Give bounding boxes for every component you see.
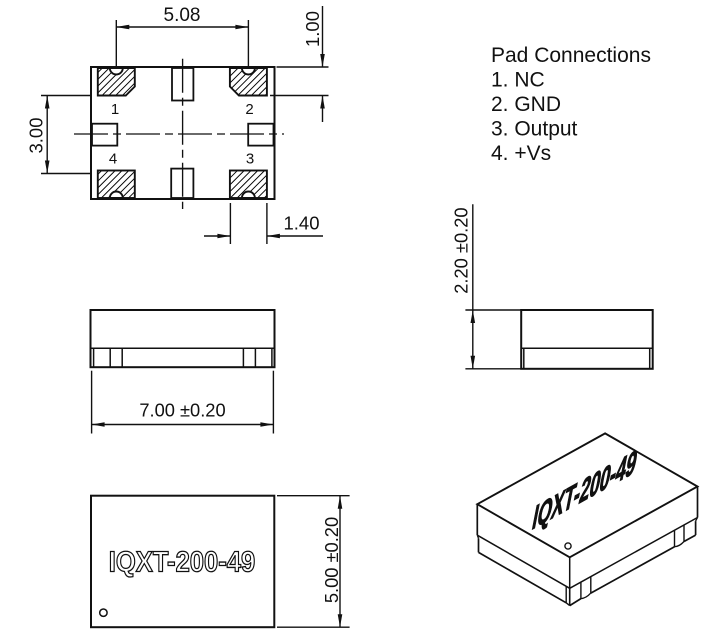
svg-text:3: 3 bbox=[246, 151, 254, 168]
svg-text:1: 1 bbox=[111, 101, 119, 118]
svg-text:IQXT-200-49: IQXT-200-49 bbox=[109, 547, 256, 579]
svg-text:5.00 ±0.20: 5.00 ±0.20 bbox=[321, 517, 342, 603]
svg-text:3. Output: 3. Output bbox=[491, 118, 578, 141]
svg-text:7.00 ±0.20: 7.00 ±0.20 bbox=[139, 400, 225, 421]
svg-text:3.00: 3.00 bbox=[26, 117, 47, 153]
svg-text:4: 4 bbox=[109, 151, 117, 168]
svg-text:4. +Vs: 4. +Vs bbox=[491, 142, 551, 165]
svg-text:2.20 ±0.20: 2.20 ±0.20 bbox=[451, 207, 472, 293]
svg-text:1.00: 1.00 bbox=[302, 11, 323, 47]
svg-text:1. NC: 1. NC bbox=[491, 69, 545, 92]
svg-text:1.40: 1.40 bbox=[283, 213, 319, 234]
svg-text:5.08: 5.08 bbox=[164, 5, 201, 26]
svg-text:2. GND: 2. GND bbox=[491, 93, 561, 116]
svg-text:2: 2 bbox=[245, 101, 253, 118]
svg-text:Pad Connections: Pad Connections bbox=[491, 44, 651, 67]
